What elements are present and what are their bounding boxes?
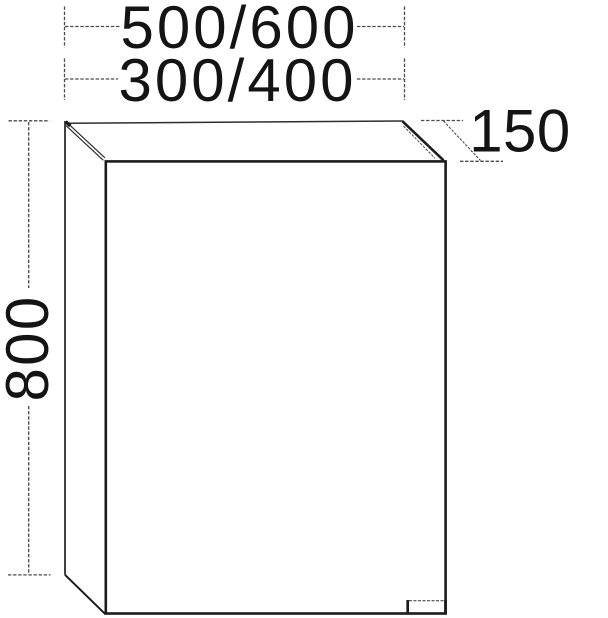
svg-text:150: 150 [469, 98, 571, 165]
svg-text:300/400: 300/400 [119, 47, 357, 114]
svg-text:800: 800 [0, 294, 61, 401]
